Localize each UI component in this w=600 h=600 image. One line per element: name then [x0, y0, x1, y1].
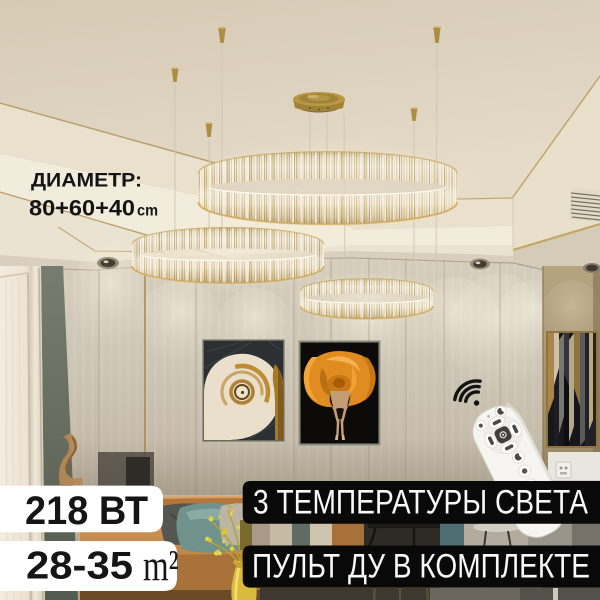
svg-text:ДИАМЕТР:: ДИАМЕТР: [31, 171, 142, 192]
svg-text:28-35: 28-35 [26, 545, 133, 588]
svg-text:cm: cm [137, 203, 158, 220]
svg-text:80+60+40: 80+60+40 [29, 196, 135, 221]
svg-text:218 ВТ: 218 ВТ [25, 489, 148, 533]
svg-text:3 ТЕМПЕРАТУРЫ СВЕТА: 3 ТЕМПЕРАТУРЫ СВЕТА [253, 483, 588, 521]
svg-text:m²: m² [143, 542, 179, 591]
svg-text:ПУЛЬТ ДУ В КОМПЛЕКТЕ: ПУЛЬТ ДУ В КОМПЛЕКТЕ [252, 548, 590, 586]
